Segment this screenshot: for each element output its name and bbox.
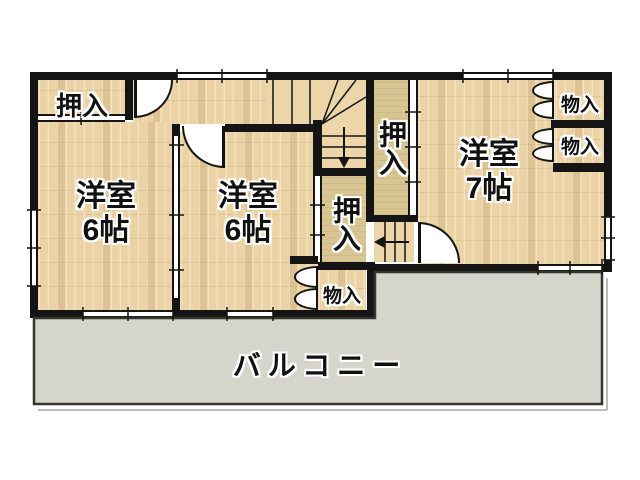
wall xyxy=(367,264,538,272)
wall xyxy=(267,72,463,80)
wall xyxy=(173,310,227,318)
window xyxy=(604,217,612,260)
wall xyxy=(30,310,83,318)
staircase-upper-run xyxy=(267,80,366,124)
storage-middle-label: 物入 xyxy=(316,281,368,308)
floor-plan: 洋室 6帖 洋室 6帖 洋室 7帖 押入 押入 押入 物入 物入 物入 バルコニ… xyxy=(0,0,640,480)
room-right-size: 7帖 xyxy=(420,172,558,206)
window xyxy=(463,72,553,80)
wall xyxy=(273,310,375,318)
storage-right-top-label: 物入 xyxy=(555,90,605,117)
room-left-type: 洋室 xyxy=(36,180,176,214)
room-middle-type: 洋室 xyxy=(178,180,318,214)
staircase-lower-run xyxy=(374,222,414,262)
staircase-mid-run xyxy=(322,124,366,168)
room-right-type: 洋室 xyxy=(420,138,558,172)
wall xyxy=(30,72,177,80)
wall xyxy=(366,215,418,222)
wall xyxy=(313,168,366,176)
room-left-label: 洋室 6帖 xyxy=(36,180,176,248)
room-left-size: 6帖 xyxy=(36,214,176,248)
window xyxy=(538,264,602,272)
wall xyxy=(172,298,180,310)
window xyxy=(177,72,267,80)
wall xyxy=(553,163,612,172)
wall xyxy=(313,120,322,168)
wall xyxy=(551,120,612,128)
wall xyxy=(604,260,612,272)
wall xyxy=(172,124,180,136)
wall xyxy=(225,124,313,132)
wall xyxy=(290,256,318,264)
closet-stair-side-label: 押入 xyxy=(373,104,409,192)
balcony-label: バルコニー xyxy=(190,344,450,384)
room-middle-label: 洋室 6帖 xyxy=(178,180,318,248)
window xyxy=(227,310,273,318)
closet-middle-label: 押入 xyxy=(327,180,363,268)
window xyxy=(83,310,173,318)
closet-top-left-label: 押入 xyxy=(36,86,128,123)
room-middle-size: 6帖 xyxy=(178,214,318,248)
storage-right-bottom-label: 物入 xyxy=(555,132,605,159)
wall xyxy=(604,72,612,217)
room-right-label: 洋室 7帖 xyxy=(420,138,558,206)
